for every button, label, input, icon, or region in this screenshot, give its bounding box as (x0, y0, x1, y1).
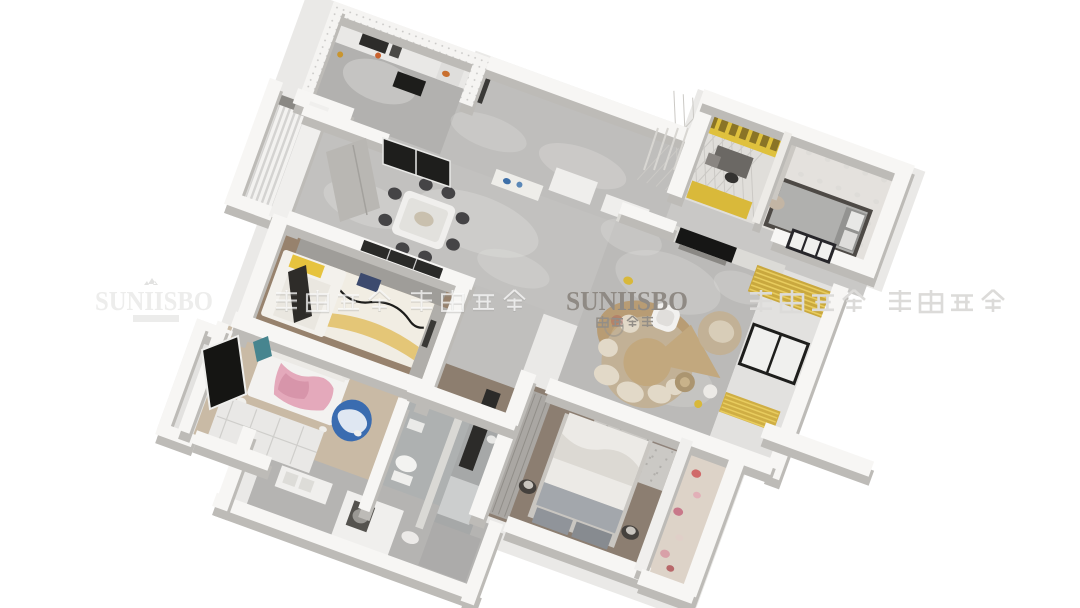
svg-text:SUNIISBO: SUNIISBO (566, 286, 688, 316)
svg-text:SUNIISBO: SUNIISBO (95, 286, 213, 316)
